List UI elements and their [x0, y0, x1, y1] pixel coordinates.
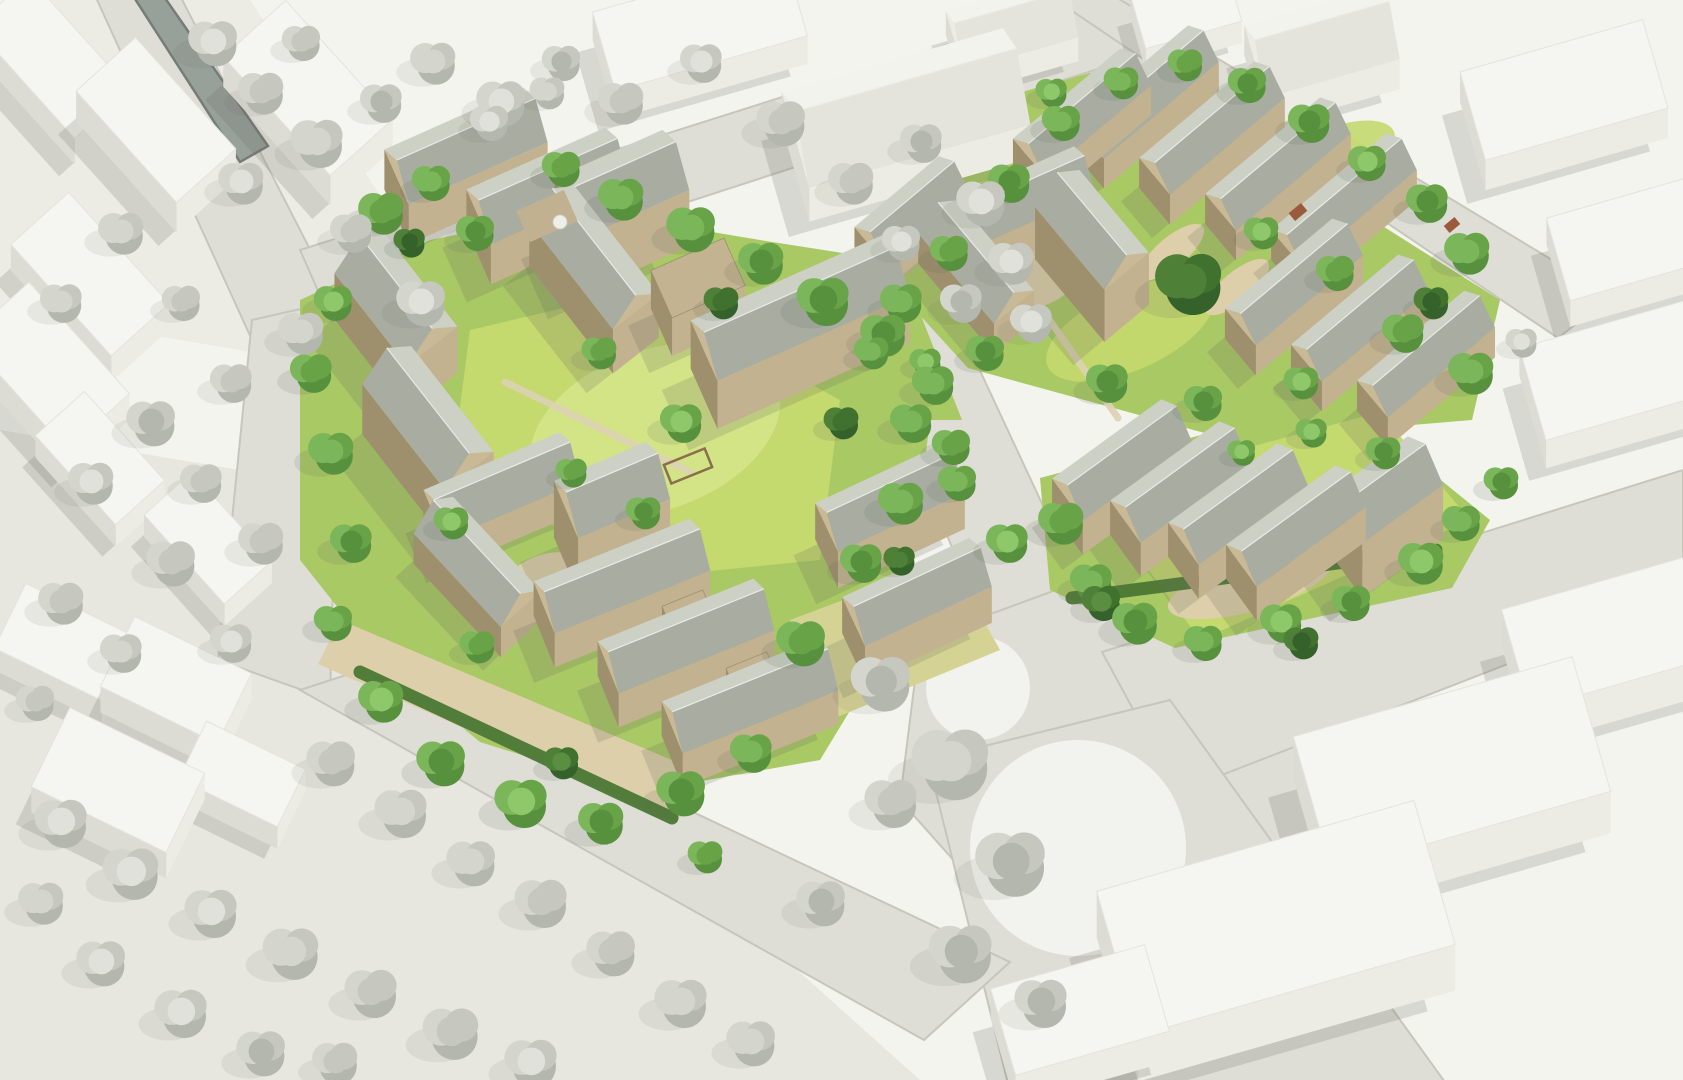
tree-canopy [931, 741, 971, 781]
tree-canopy [975, 341, 995, 361]
tree-canopy [250, 530, 274, 554]
tree-canopy [891, 551, 908, 568]
site-plan-figure [0, 0, 1683, 1080]
tree-canopy [89, 949, 115, 975]
tree-canopy [850, 550, 872, 572]
tree-canopy [552, 752, 570, 770]
tree-canopy [249, 1039, 275, 1065]
tree-canopy [1237, 73, 1257, 93]
tree-canopy [1460, 360, 1484, 384]
tree-canopy [669, 779, 695, 805]
tree-canopy [250, 80, 274, 104]
tree-canopy [1193, 631, 1213, 651]
tree-canopy [30, 890, 54, 914]
tree-canopy [789, 629, 815, 655]
tree-canopy [1051, 111, 1071, 131]
tree-canopy [1357, 151, 1377, 171]
tree-canopy [220, 630, 242, 652]
tree-canopy [679, 215, 705, 241]
tree-canopy [324, 1050, 348, 1074]
tree-canopy [1292, 372, 1310, 390]
tree-canopy [190, 470, 212, 492]
tree-canopy [1303, 423, 1320, 440]
tree-canopy [340, 530, 362, 552]
tree-canopy [670, 410, 692, 432]
tree-canopy [1172, 264, 1207, 299]
tree-canopy [323, 611, 343, 631]
tree-canopy [1492, 472, 1510, 490]
tree-canopy [668, 988, 696, 1016]
tree-canopy [538, 82, 556, 100]
tree-canopy [159, 549, 185, 575]
tree-canopy [1193, 391, 1213, 411]
tree-canopy [300, 360, 322, 382]
tree-canopy [996, 530, 1018, 552]
tree-canopy [1096, 370, 1118, 392]
tree-canopy [599, 939, 625, 965]
tree-canopy [1341, 591, 1361, 611]
tree-canopy [110, 220, 134, 244]
tree-canopy [277, 937, 306, 966]
tree-canopy [1028, 988, 1056, 1016]
tree-canopy [740, 740, 762, 762]
tree-canopy [947, 471, 967, 491]
parasol-table [553, 215, 567, 229]
tree-canopy [1456, 240, 1480, 264]
tree-canopy [429, 749, 455, 775]
tree-canopy [1252, 222, 1270, 240]
tree-canopy [319, 749, 345, 775]
tree-canopy [304, 128, 332, 156]
tree-canopy [769, 109, 795, 135]
tree-canopy [290, 320, 314, 344]
tree-canopy [809, 889, 835, 915]
tree-canopy [551, 51, 571, 71]
tree-canopy [750, 250, 774, 274]
tree-canopy [117, 857, 146, 886]
tree-canopy [862, 342, 880, 360]
tree-canopy [201, 29, 227, 55]
tree-canopy [442, 512, 460, 530]
tree-canopy [866, 666, 897, 697]
tree-canopy [890, 490, 914, 514]
tree-canopy [370, 90, 392, 112]
tree-canopy [80, 470, 104, 494]
tree-canopy [610, 186, 634, 210]
tree-canopy [1422, 292, 1440, 310]
tree-canopy [479, 111, 499, 131]
tree-canopy [1416, 190, 1438, 212]
tree-canopy [1292, 632, 1310, 650]
tree-canopy [840, 170, 864, 194]
tree-canopy [528, 888, 556, 916]
tree-canopy [25, 691, 45, 711]
tree-canopy [323, 291, 343, 311]
tree-canopy [388, 798, 416, 826]
aerial-view-canvas [0, 0, 1683, 1080]
tree-canopy [1091, 591, 1111, 611]
tree-canopy [634, 502, 652, 520]
tree-canopy [945, 935, 978, 968]
tree-canopy [832, 412, 850, 430]
tree-canopy [1298, 110, 1320, 132]
tree-canopy [590, 810, 614, 834]
tree-canopy [171, 291, 191, 311]
tree-canopy [370, 200, 394, 224]
tree-canopy [508, 788, 536, 816]
tree-canopy [1043, 83, 1060, 100]
tree-canopy [468, 636, 486, 654]
tree-canopy [1451, 511, 1471, 531]
tree-canopy [437, 1017, 466, 1046]
tree-canopy [50, 590, 74, 614]
tree-canopy [168, 998, 196, 1026]
tree-canopy [48, 808, 76, 836]
tree-canopy [220, 370, 242, 392]
tree-canopy [110, 640, 132, 662]
tree-canopy [712, 292, 730, 310]
tree-canopy [340, 220, 362, 242]
tree-canopy [409, 289, 435, 315]
tree-canopy [1410, 550, 1434, 574]
tree-canopy [358, 978, 386, 1006]
tree-canopy [1176, 54, 1194, 72]
tree-canopy [1000, 250, 1024, 274]
tree-canopy [950, 290, 972, 312]
tree-canopy [891, 231, 911, 251]
tree-canopy [610, 90, 634, 114]
tree-canopy [690, 50, 712, 72]
tree-canopy [993, 843, 1030, 880]
tree-canopy [810, 286, 838, 314]
tree-canopy [518, 1048, 546, 1076]
tree-canopy [1392, 320, 1414, 342]
tree-canopy [922, 372, 944, 394]
tree-canopy [291, 31, 311, 51]
tree-canopy [230, 170, 254, 194]
tree-canopy [551, 157, 571, 177]
tree-canopy [910, 130, 932, 152]
tree-canopy [198, 898, 226, 926]
tree-canopy [465, 221, 485, 241]
tree-canopy [370, 688, 394, 712]
tree-canopy [563, 463, 580, 480]
tree-canopy [1050, 510, 1074, 534]
tree-canopy [1124, 610, 1148, 634]
tree-canopy [941, 435, 961, 455]
tree-canopy [1020, 310, 1042, 332]
tree-canopy [1513, 333, 1530, 350]
tree-canopy [590, 342, 608, 360]
tree-canopy [900, 410, 922, 432]
tree-canopy [969, 189, 995, 215]
tree-canopy [1234, 444, 1249, 459]
tree-canopy [739, 1029, 765, 1055]
tree-canopy [422, 50, 446, 74]
tree-canopy [401, 233, 418, 250]
tree-canopy [139, 409, 165, 435]
tree-canopy [1325, 261, 1345, 281]
tree-canopy [696, 846, 714, 864]
tree-canopy [459, 849, 485, 875]
tree-canopy [421, 171, 441, 191]
tree-canopy [939, 241, 959, 261]
tree-canopy [878, 788, 906, 816]
tree-canopy [320, 440, 344, 464]
tree-canopy [50, 290, 72, 312]
tree-canopy [1112, 72, 1130, 90]
tree-canopy [890, 290, 912, 312]
tree-canopy [1374, 442, 1392, 460]
